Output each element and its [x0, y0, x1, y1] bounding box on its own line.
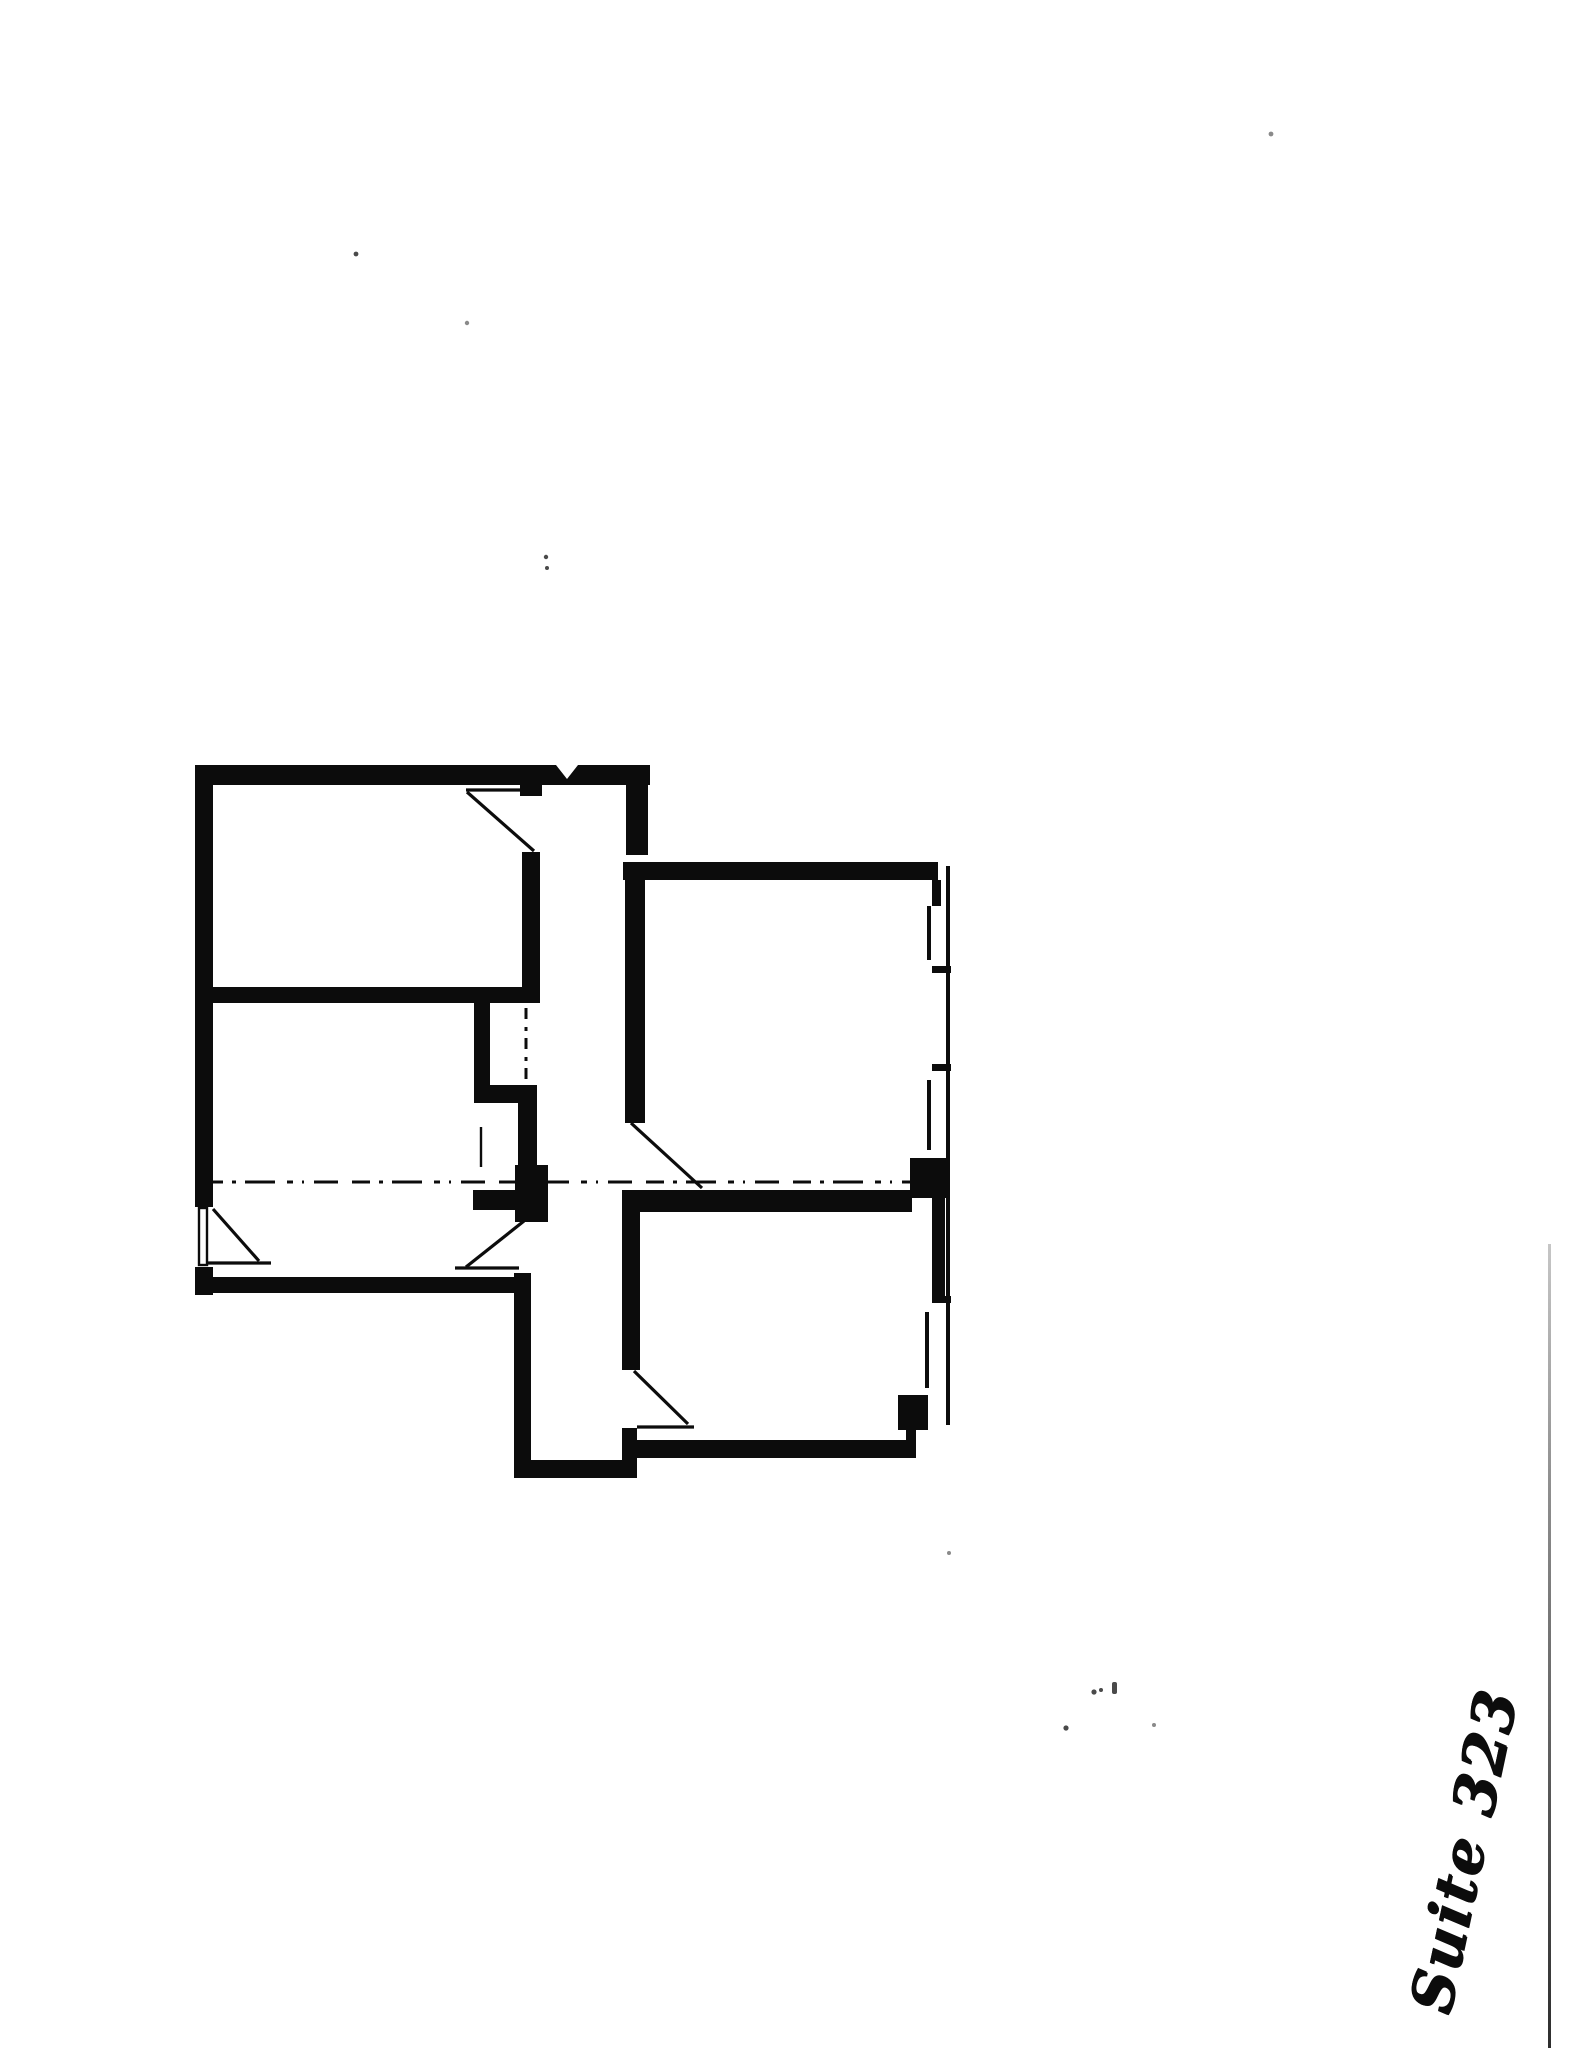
wall-segment-left — [622, 1212, 640, 1370]
door-jamb-block — [622, 1428, 637, 1463]
door-swing — [631, 1123, 702, 1188]
door-leaf-closed — [199, 1208, 207, 1265]
wall-segment-top-step — [626, 775, 648, 855]
closet-wall-stub — [473, 1190, 517, 1210]
ink-speck — [545, 566, 549, 570]
ink-speck — [1269, 132, 1274, 137]
room-bottom-right — [622, 1212, 928, 1463]
scan-specks — [354, 132, 1274, 1731]
scanned-floor-plan-page: Suite 323 — [0, 0, 1583, 2048]
door-swing — [467, 792, 534, 851]
window-outer-line — [946, 866, 950, 1425]
wall-segment-bottom — [514, 1460, 637, 1478]
ink-speck — [1091, 1689, 1096, 1694]
ink-speck — [1112, 1682, 1117, 1694]
door-swing — [634, 1371, 688, 1424]
wall-segment-right — [522, 852, 540, 1003]
wall-jog-block — [898, 1395, 928, 1430]
wall-segment-top — [623, 862, 938, 880]
corridor-door-swing — [466, 1221, 524, 1267]
ink-speck — [1099, 1688, 1103, 1692]
ink-speck — [1152, 1723, 1156, 1727]
ink-speck — [1063, 1725, 1068, 1730]
wall-segment-left-upper — [195, 765, 213, 1207]
room-top-left — [195, 765, 650, 1207]
wall-segment-bottom — [195, 1277, 517, 1293]
wall-segment-top — [195, 765, 650, 785]
wall-segment-room-divider — [622, 1190, 912, 1212]
ink-speck — [544, 555, 548, 559]
scan-artifact-line — [1548, 1244, 1551, 2048]
ink-speck — [947, 1551, 951, 1555]
door-swing — [213, 1209, 259, 1261]
wall-segment-left-lower — [514, 1273, 531, 1478]
door-jamb-block — [520, 778, 542, 796]
window-mullion — [932, 1296, 951, 1303]
wall-segment-right-stub — [906, 1428, 916, 1458]
window-mullion — [932, 1064, 951, 1071]
window-sill-dash — [927, 906, 931, 960]
ink-speck — [354, 252, 359, 257]
window-wall — [910, 866, 951, 1425]
wall-segment-room-divider — [195, 987, 540, 1003]
floor-plan-drawing — [0, 0, 1583, 2048]
room-bottom-left — [195, 1208, 524, 1295]
center-wall-block — [515, 1165, 548, 1222]
wall-segment-bottom — [637, 1440, 915, 1458]
window-sill-dash — [927, 1080, 931, 1150]
window-inner-segment — [932, 1198, 945, 1298]
wall-junction-block — [910, 1158, 948, 1198]
window-inner-segment — [932, 880, 941, 906]
wall-segment-left — [625, 880, 645, 1123]
closet-wall-right — [518, 1085, 537, 1170]
ink-speck — [465, 321, 469, 325]
window-mullion — [932, 966, 951, 973]
window-sill-dash — [925, 1312, 929, 1388]
room-top-right — [622, 862, 938, 1212]
